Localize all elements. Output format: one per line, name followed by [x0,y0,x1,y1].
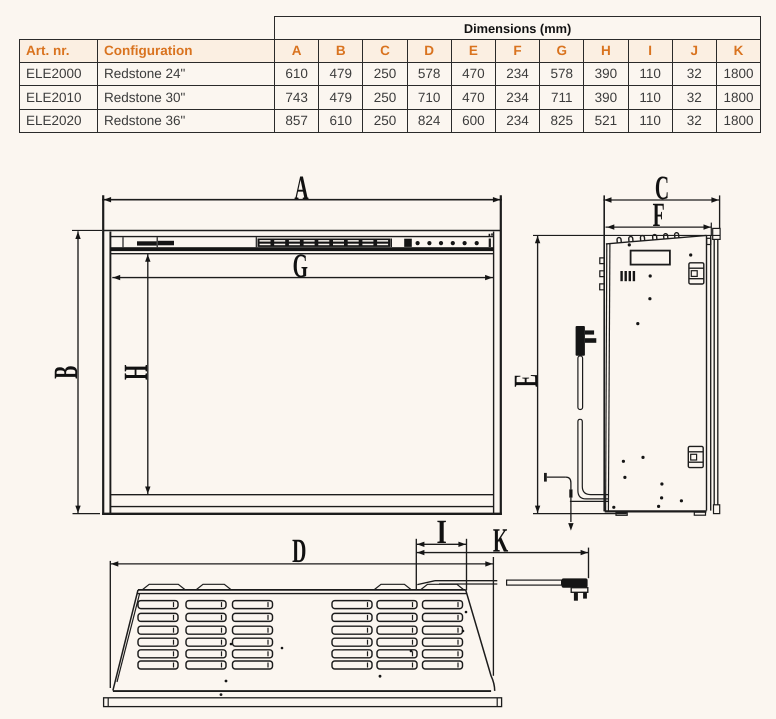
svg-text:K: K [493,522,509,559]
svg-text:G: G [293,248,308,285]
svg-text:F: F [653,197,665,234]
svg-text:H: H [118,365,155,380]
svg-text:E: E [508,374,545,387]
svg-text:B: B [48,366,85,379]
svg-text:A: A [294,170,309,207]
svg-text:D: D [292,533,306,570]
svg-text:I: I [436,514,446,551]
